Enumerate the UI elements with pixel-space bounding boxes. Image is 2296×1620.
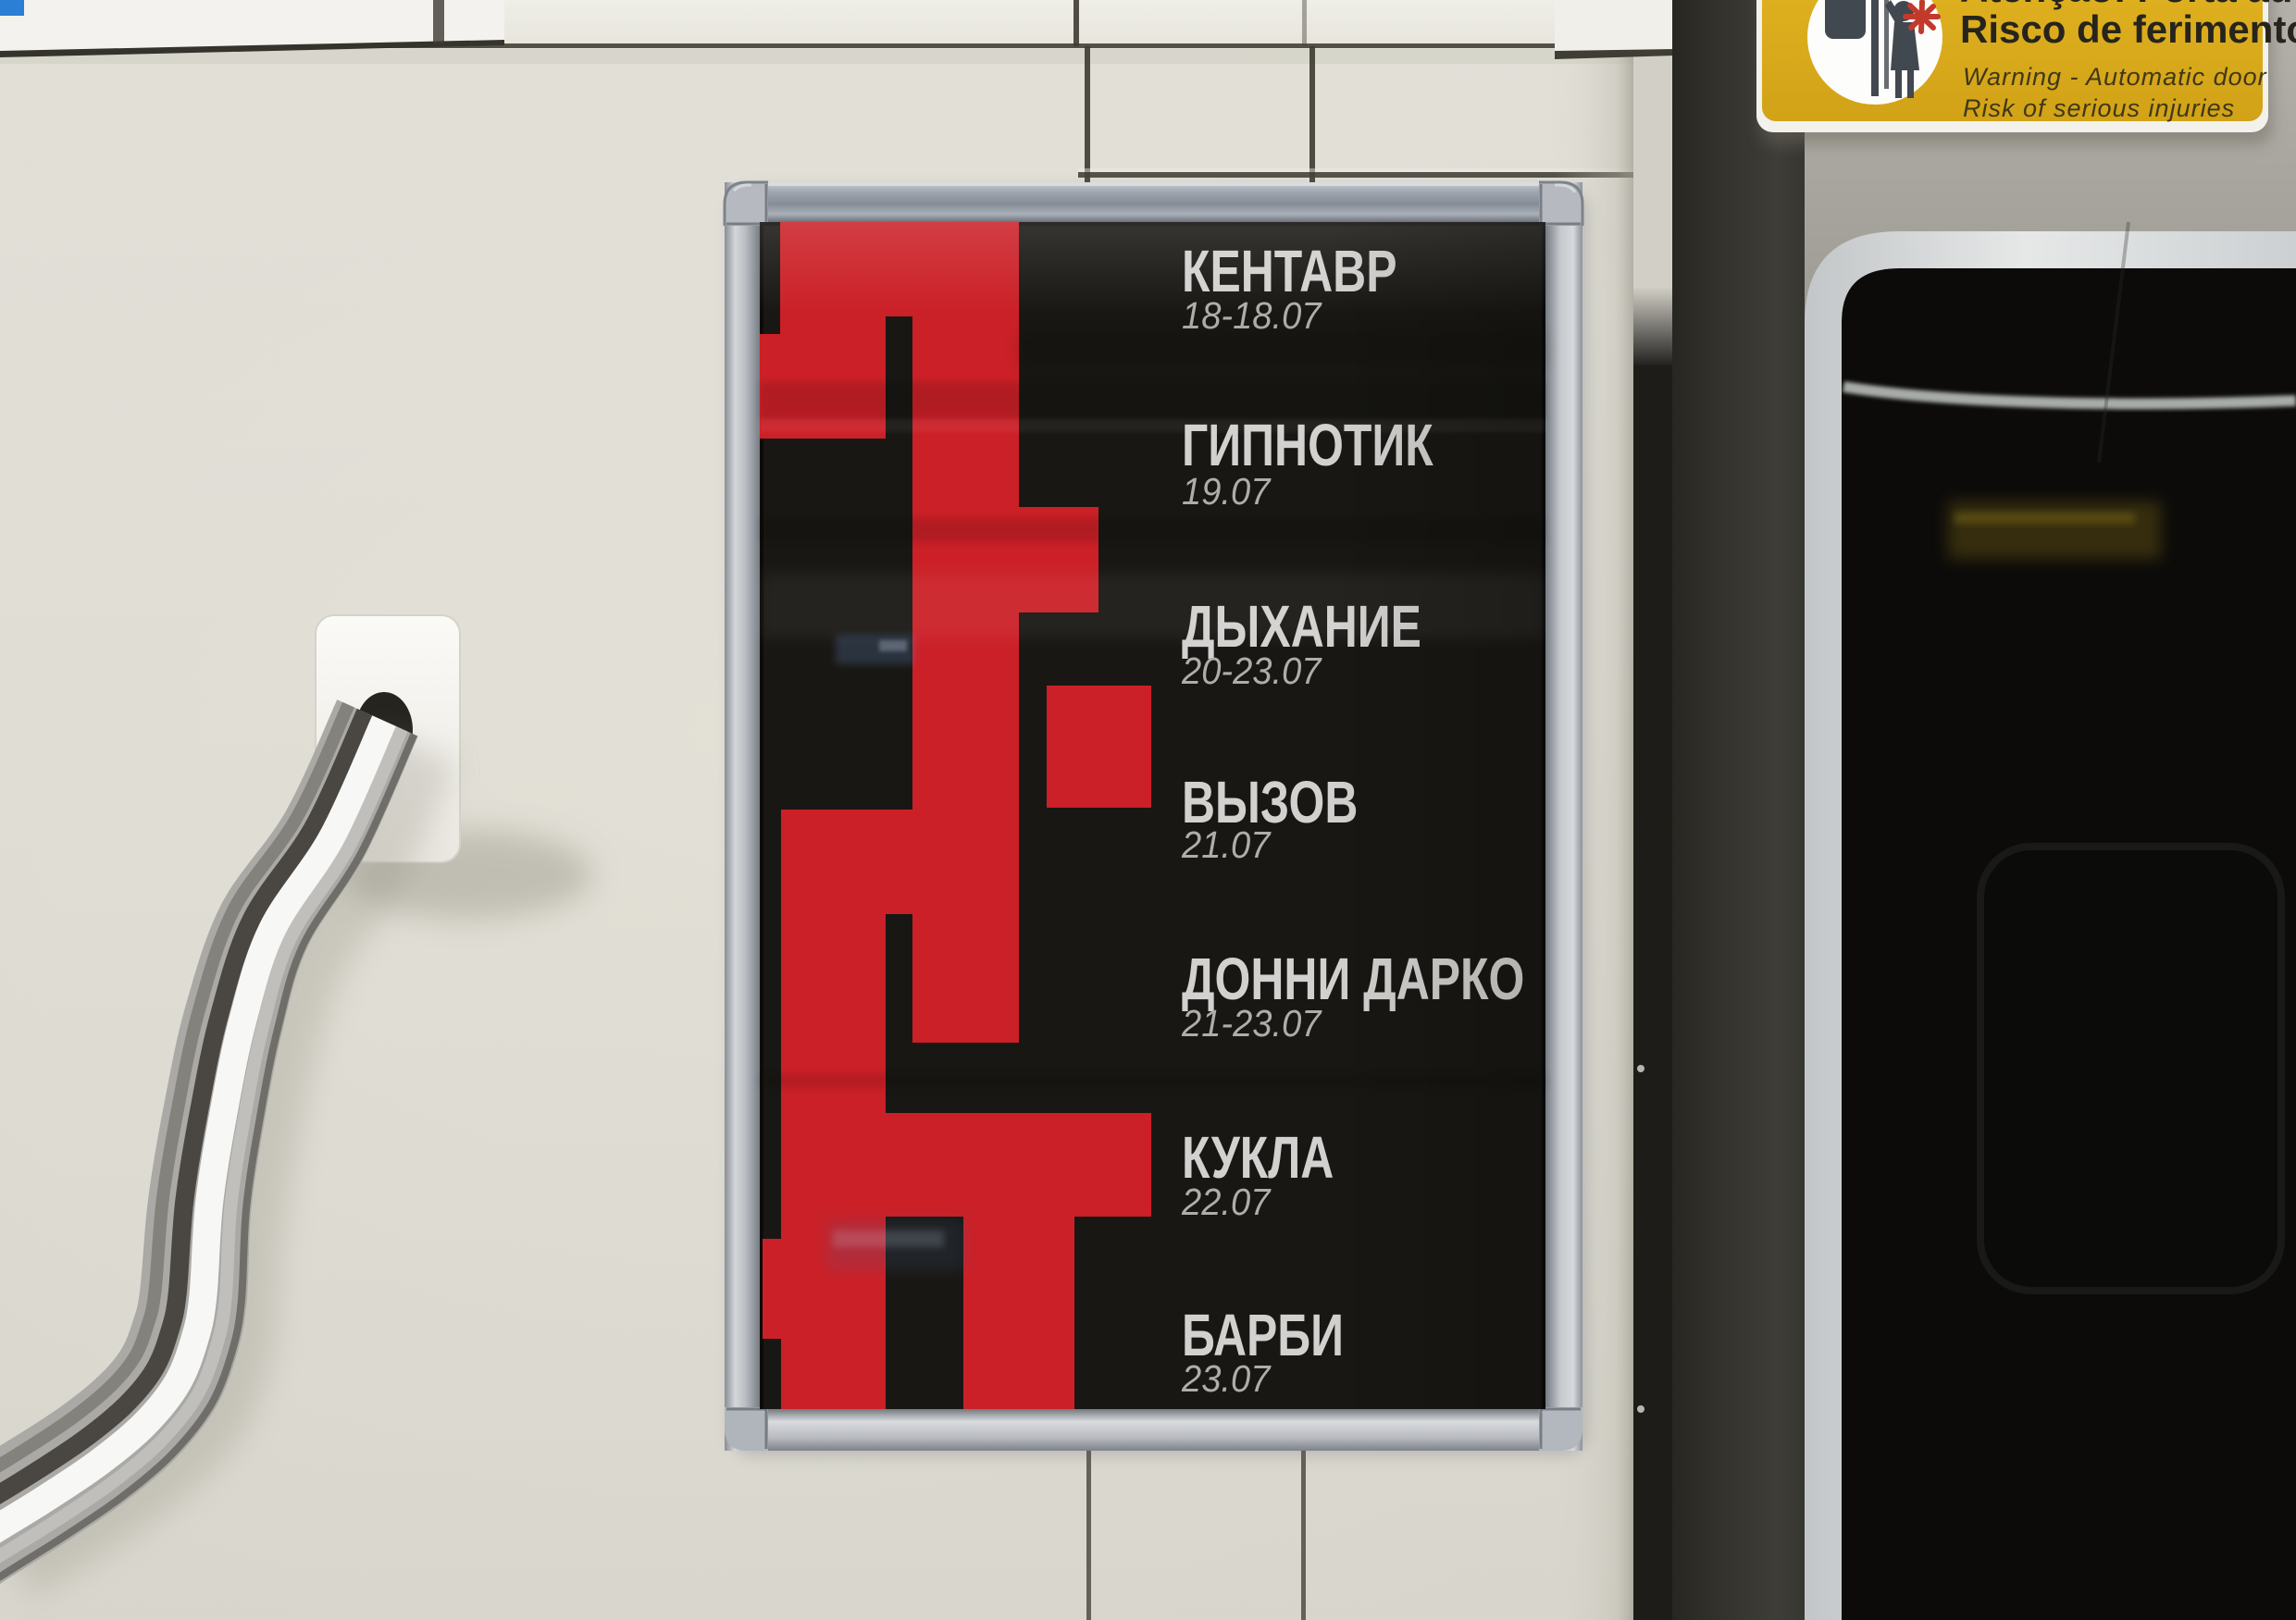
- svg-text:22.07: 22.07: [1181, 1181, 1272, 1224]
- svg-text:Risk of serious injuries: Risk of serious injuries: [1963, 94, 2235, 122]
- svg-text:21-23.07: 21-23.07: [1181, 1003, 1322, 1045]
- svg-text:19.07: 19.07: [1182, 471, 1272, 513]
- svg-text:Warning - Automatic door: Warning - Automatic door: [1963, 63, 2267, 91]
- svg-text:23.07: 23.07: [1181, 1358, 1272, 1401]
- svg-text:Risco de ferimentos: Risco de ferimentos: [1960, 7, 2296, 51]
- svg-text:20-23.07: 20-23.07: [1181, 650, 1322, 693]
- svg-text:21.07: 21.07: [1181, 824, 1272, 867]
